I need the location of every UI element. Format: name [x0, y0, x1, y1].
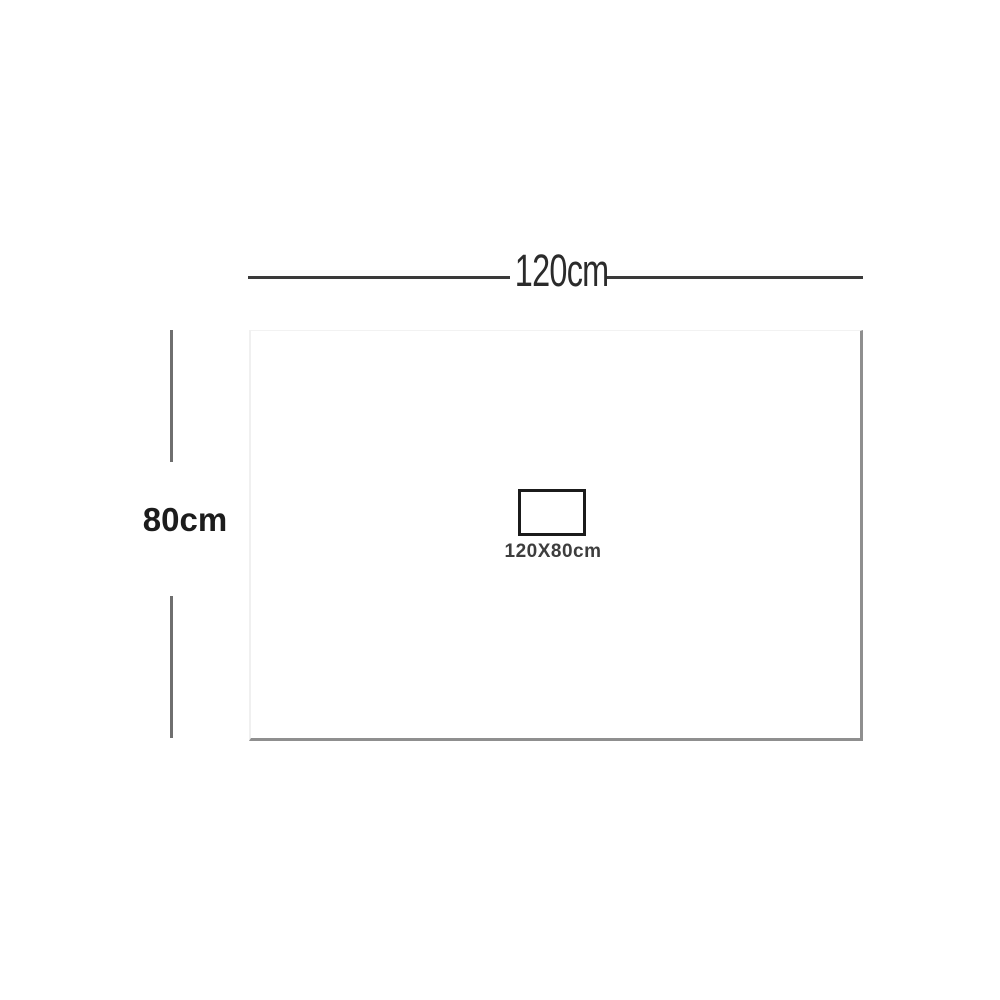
height-dimension-line-top — [170, 330, 173, 462]
width-dimension-label: 120cm — [515, 248, 601, 293]
height-dimension-line-bottom — [170, 596, 173, 738]
width-dimension-line-right — [606, 276, 863, 279]
dimension-diagram: 120cm 80cm 120X80cm — [0, 0, 1000, 1000]
size-label: 120X80cm — [488, 542, 618, 561]
height-dimension-label: 80cm — [128, 503, 242, 536]
width-dimension-line-left — [248, 276, 510, 279]
size-rectangle-icon — [518, 489, 586, 536]
